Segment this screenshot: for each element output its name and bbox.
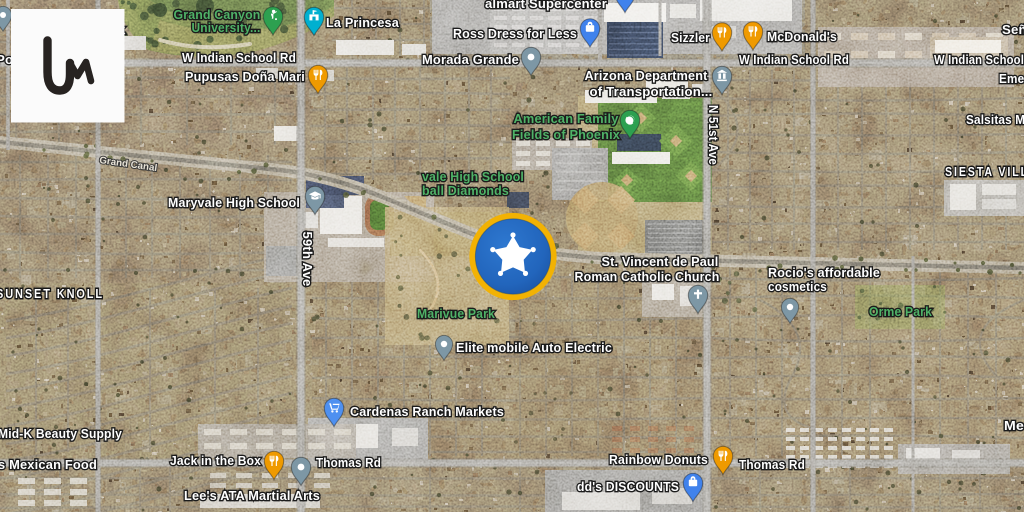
svg-text:Roman Catholic Church: Roman Catholic Church	[575, 269, 720, 284]
svg-text:Rocio's affordable: Rocio's affordable	[768, 265, 880, 280]
svg-text:St. Vincent de Paul: St. Vincent de Paul	[602, 254, 719, 269]
svg-text:Sizzler: Sizzler	[671, 30, 710, 45]
svg-text:59th Ave: 59th Ave	[300, 232, 314, 287]
svg-text:La Princesa: La Princesa	[326, 15, 399, 30]
svg-text:Jack in the Box: Jack in the Box	[170, 453, 261, 468]
svg-text:s Mexican Food: s Mexican Food	[0, 457, 97, 472]
svg-text:American Family: American Family	[514, 111, 619, 126]
svg-text:W Indian School Rd: W Indian School Rd	[182, 51, 296, 65]
svg-text:Thomas Rd: Thomas Rd	[739, 458, 805, 472]
svg-text:cosmetics: cosmetics	[768, 279, 827, 294]
svg-text:Arizona Department: Arizona Department	[585, 68, 708, 83]
svg-text:of Transportation...: of Transportation...	[590, 84, 713, 99]
svg-text:N 51st Ave: N 51st Ave	[706, 105, 720, 165]
svg-text:Cardenas Ranch Markets: Cardenas Ranch Markets	[350, 404, 504, 419]
svg-text:Thomas Rd: Thomas Rd	[316, 456, 381, 470]
svg-text:Señ: Señ	[1002, 22, 1024, 37]
svg-text:vale High School: vale High School	[422, 169, 524, 184]
svg-text:McDonald's: McDonald's	[767, 29, 837, 44]
svg-text:W Indian School: W Indian School	[934, 53, 1024, 67]
svg-text:ball Diamonds: ball Diamonds	[422, 183, 509, 198]
svg-text:Orme Park: Orme Park	[869, 304, 932, 319]
svg-text:Ross Dress for Less: Ross Dress for Less	[453, 26, 577, 41]
svg-text:SUNSET KNOLL: SUNSET KNOLL	[0, 287, 104, 301]
svg-text:Salsitas Me: Salsitas Me	[966, 112, 1024, 127]
svg-text:Marivue Park: Marivue Park	[417, 306, 495, 321]
svg-text:Maryvale High School: Maryvale High School	[168, 195, 300, 210]
svg-text:Mid-K Beauty Supply: Mid-K Beauty Supply	[0, 426, 122, 441]
svg-text:Pupusas Doña Mari: Pupusas Doña Mari	[185, 69, 305, 84]
svg-text:Morada Grande: Morada Grande	[422, 52, 519, 67]
svg-text:Emer: Emer	[999, 71, 1024, 86]
svg-text:Me: Me	[1004, 418, 1024, 433]
svg-text:Fields of Phoenix: Fields of Phoenix	[512, 127, 620, 142]
svg-text:Rainbow Donuts: Rainbow Donuts	[609, 452, 708, 467]
svg-text:SIESTA VILL: SIESTA VILL	[945, 165, 1024, 179]
svg-text:W Indian School Rd: W Indian School Rd	[739, 53, 849, 67]
svg-text:Elite mobile Auto Electric: Elite mobile Auto Electric	[456, 340, 612, 355]
svg-text:University...: University...	[192, 20, 261, 35]
svg-text:Lee's ATA Martial Arts: Lee's ATA Martial Arts	[184, 488, 320, 503]
svg-text:dd's DISCOUNTS: dd's DISCOUNTS	[577, 479, 679, 494]
svg-text:almart Supercenter: almart Supercenter	[485, 0, 607, 11]
